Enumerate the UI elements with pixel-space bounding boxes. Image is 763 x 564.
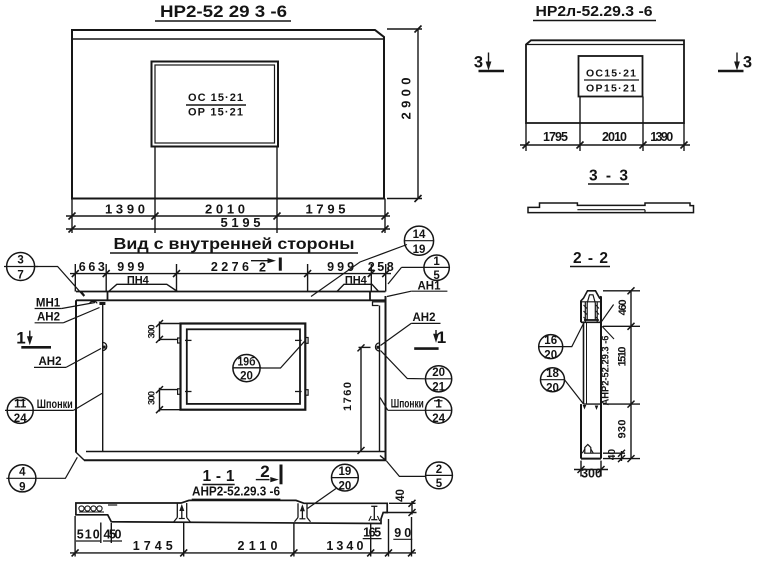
svg-text:1: 1 (433, 256, 440, 268)
svg-text:3: 3 (17, 255, 23, 267)
svg-text:1795: 1795 (543, 130, 568, 144)
svg-text:19б: 19б (238, 357, 256, 369)
svg-text:АН2: АН2 (412, 312, 435, 324)
svg-text:АН2: АН2 (38, 356, 61, 368)
svg-text:20: 20 (546, 383, 559, 395)
svg-text:165: 165 (363, 526, 381, 540)
svg-text:ОС 15·21: ОС 15·21 (188, 92, 243, 104)
svg-text:1390: 1390 (650, 130, 673, 144)
svg-text:24: 24 (432, 413, 445, 425)
svg-text:20: 20 (432, 367, 445, 379)
svg-text:7: 7 (17, 270, 23, 282)
svg-text:460: 460 (617, 299, 629, 315)
svg-text:Шпонки: Шпонки (391, 399, 424, 411)
svg-text:20: 20 (240, 371, 253, 383)
svg-text:1510: 1510 (617, 347, 629, 367)
svg-text:1: 1 (437, 328, 446, 347)
svg-text:2: 2 (260, 462, 269, 481)
svg-text:16: 16 (544, 335, 557, 347)
svg-text:24: 24 (14, 413, 27, 425)
svg-text:258: 258 (368, 260, 394, 274)
svg-text:14: 14 (413, 229, 426, 241)
svg-text:663: 663 (79, 260, 105, 274)
svg-text:2: 2 (436, 464, 442, 476)
svg-text:18: 18 (546, 368, 559, 380)
svg-text:НР2-52 29 3 -6: НР2-52 29 3 -6 (160, 2, 287, 21)
svg-text:19: 19 (413, 244, 426, 256)
svg-text:2: 2 (259, 261, 266, 275)
svg-text:510: 510 (77, 528, 100, 542)
svg-text:АНР2-52.29.3 -6: АНР2-52.29.3 -6 (600, 335, 612, 405)
svg-text:АН1: АН1 (417, 281, 441, 293)
svg-text:1: 1 (435, 398, 442, 410)
svg-text:2 - 2: 2 - 2 (573, 250, 608, 267)
svg-text:999: 999 (117, 260, 144, 274)
svg-text:20: 20 (339, 481, 352, 493)
svg-text:40: 40 (395, 489, 407, 502)
svg-text:АН2: АН2 (37, 312, 60, 324)
svg-text:999: 999 (327, 260, 354, 274)
svg-text:ОР15·21: ОР15·21 (586, 83, 636, 95)
svg-text:3 - 3: 3 - 3 (589, 168, 628, 185)
svg-text:3: 3 (474, 54, 483, 72)
svg-text:4: 4 (19, 466, 26, 478)
svg-text:1: 1 (16, 329, 25, 348)
svg-text:Вид с внутренней стороны: Вид с внутренней стороны (114, 236, 355, 253)
svg-text:300: 300 (147, 391, 158, 405)
svg-text:НР2л-52.29.3 -6: НР2л-52.29.3 -6 (536, 3, 653, 20)
svg-text:20: 20 (544, 349, 557, 361)
svg-text:9: 9 (19, 481, 25, 493)
svg-text:ПН4: ПН4 (127, 274, 150, 286)
svg-text:300: 300 (147, 325, 158, 339)
svg-text:300: 300 (581, 467, 602, 481)
svg-text:21: 21 (432, 382, 445, 394)
svg-text:40: 40 (607, 449, 618, 461)
svg-text:5: 5 (436, 478, 443, 490)
svg-text:1 - 1: 1 - 1 (203, 468, 235, 485)
svg-text:ПН4: ПН4 (345, 274, 368, 286)
svg-text:Шпонки: Шпонки (37, 399, 73, 411)
svg-text:ОС15·21: ОС15·21 (586, 68, 636, 80)
svg-text:11: 11 (14, 399, 27, 411)
svg-text:5: 5 (433, 270, 440, 282)
svg-text:3: 3 (743, 54, 752, 72)
svg-text:ОР 15·21: ОР 15·21 (188, 107, 243, 119)
svg-text:19: 19 (339, 466, 352, 478)
svg-text:930: 930 (617, 420, 629, 439)
svg-text:АНР2-52.29.3 -6: АНР2-52.29.3 -6 (192, 485, 280, 499)
svg-text:450: 450 (104, 528, 122, 542)
svg-text:МН1: МН1 (36, 298, 61, 310)
svg-text:1760: 1760 (342, 382, 354, 411)
svg-text:2010: 2010 (602, 130, 627, 144)
